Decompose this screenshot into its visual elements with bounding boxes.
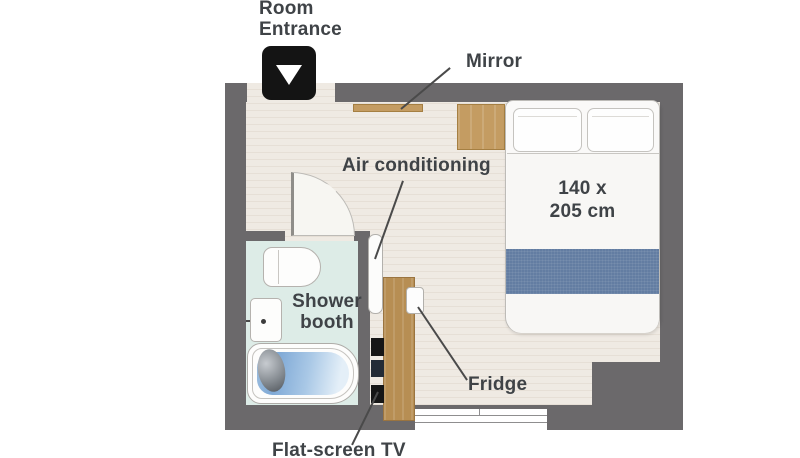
console-table bbox=[457, 104, 505, 150]
toilet bbox=[263, 247, 321, 287]
bed-size-line2: 205 cm bbox=[506, 200, 659, 223]
pillow bbox=[513, 108, 582, 152]
sink-drain bbox=[261, 319, 266, 324]
flat-screen-tv bbox=[371, 338, 384, 356]
fridge-label: Fridge bbox=[468, 374, 527, 395]
bed: 140 x 205 cm bbox=[505, 100, 660, 333]
bed-size-label: 140 x 205 cm bbox=[506, 177, 659, 223]
flat-screen-tv-label: Flat-screen TV bbox=[272, 440, 406, 458]
wall-right bbox=[660, 83, 683, 430]
down-arrow-icon bbox=[276, 65, 302, 85]
bed-size-line1: 140 x bbox=[506, 177, 659, 200]
bathtub bbox=[247, 343, 359, 404]
wall-corner-column bbox=[592, 362, 660, 430]
sink bbox=[250, 298, 282, 342]
room-entrance-icon bbox=[262, 46, 316, 100]
entrance-jamb bbox=[225, 83, 247, 102]
mirror bbox=[353, 104, 423, 112]
shower-booth-label: Shower booth bbox=[281, 291, 373, 333]
mirror-label: Mirror bbox=[466, 51, 522, 72]
pillow bbox=[587, 108, 654, 152]
air-conditioning-label: Air conditioning bbox=[342, 155, 491, 176]
bed-runner bbox=[506, 249, 659, 294]
wall-left bbox=[225, 83, 246, 430]
room-entrance-label: Room Entrance bbox=[259, 0, 342, 40]
flat-screen-tv bbox=[371, 360, 384, 377]
bathroom-wall-top-left bbox=[240, 231, 285, 241]
window bbox=[415, 409, 547, 430]
room-floor-plan: 140 x 205 cm Room Entrance Mirror Air co… bbox=[0, 0, 800, 458]
